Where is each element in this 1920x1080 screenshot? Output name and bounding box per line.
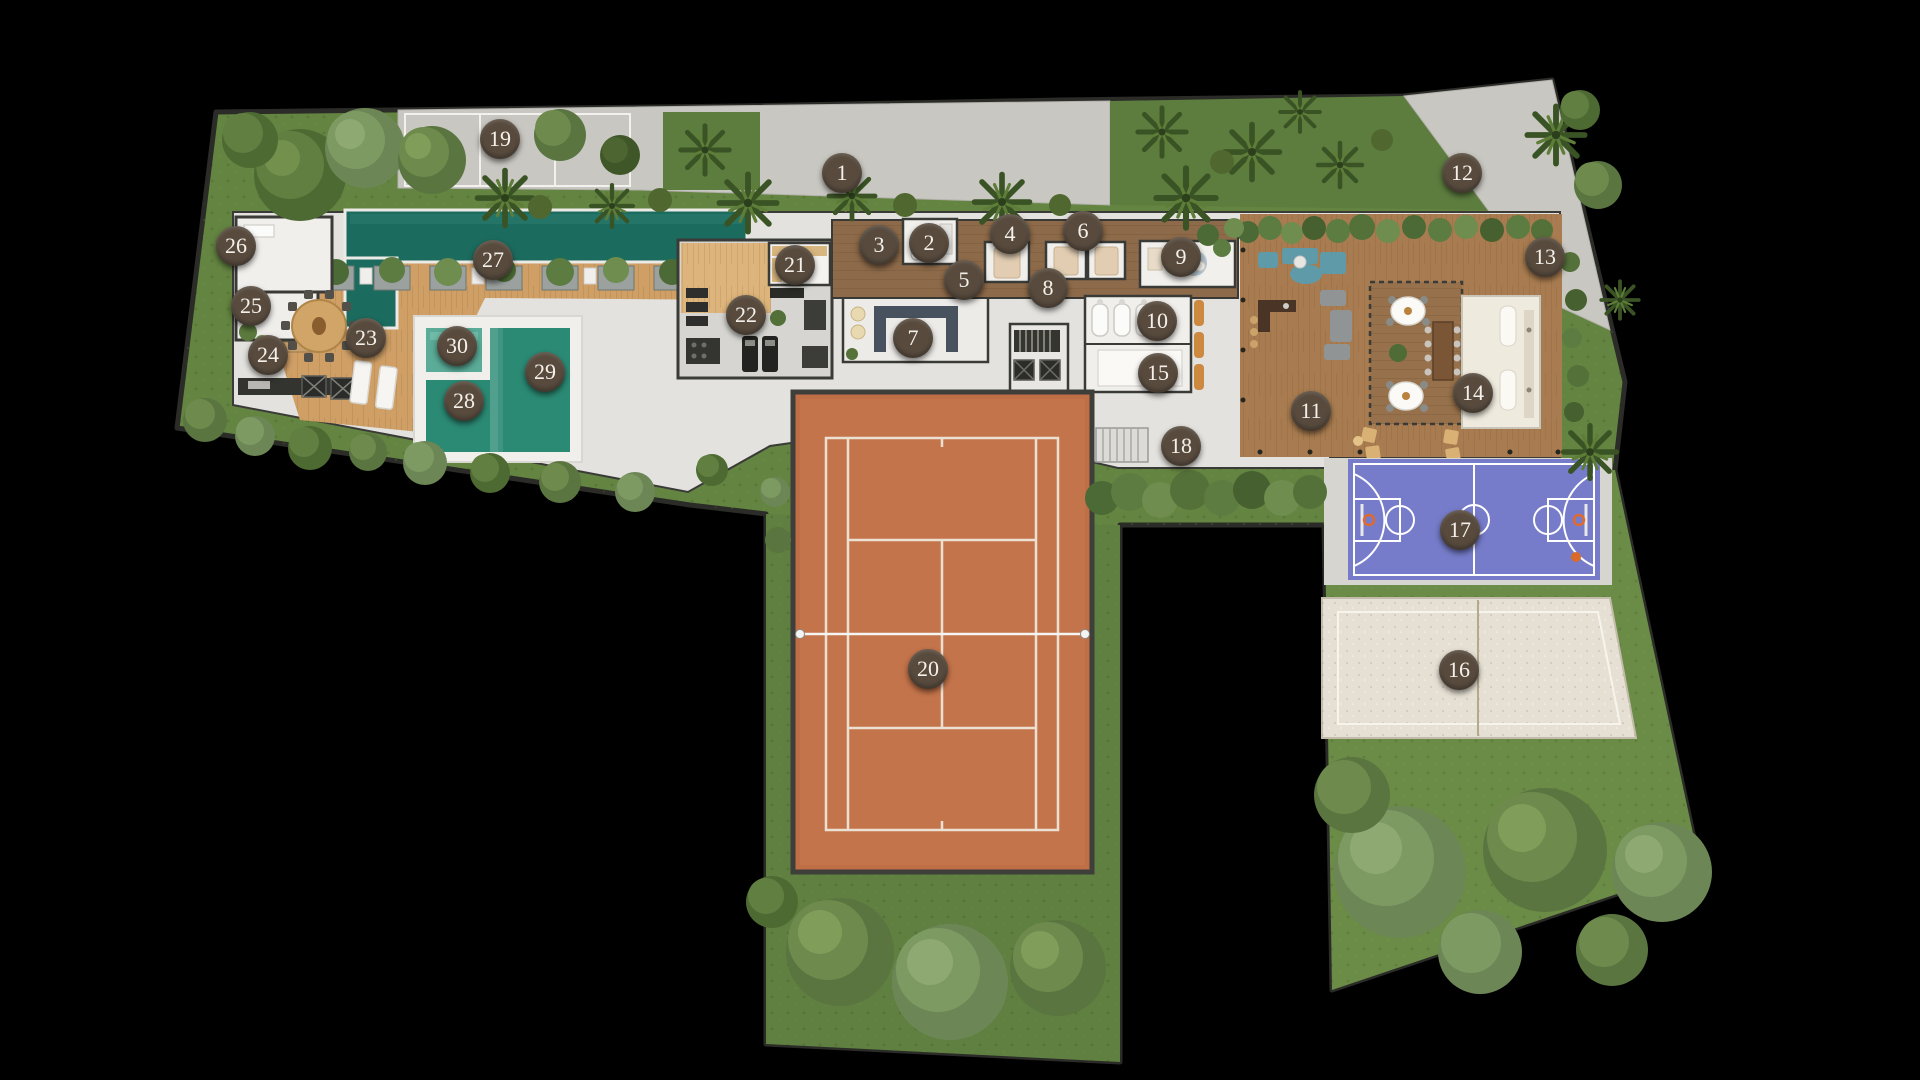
site-plan-stage: ♿ <box>0 0 1920 1080</box>
marker-1[interactable]: 1 <box>822 153 862 193</box>
marker-29[interactable]: 29 <box>525 352 565 392</box>
marker-8[interactable]: 8 <box>1028 268 1068 308</box>
marker-12[interactable]: 12 <box>1442 153 1482 193</box>
marker-18[interactable]: 18 <box>1161 426 1201 466</box>
marker-21[interactable]: 21 <box>775 245 815 285</box>
marker-20[interactable]: 20 <box>908 649 948 689</box>
marker-17[interactable]: 17 <box>1440 510 1480 550</box>
marker-23[interactable]: 23 <box>346 318 386 358</box>
marker-2[interactable]: 2 <box>909 223 949 263</box>
marker-27[interactable]: 27 <box>473 240 513 280</box>
marker-6[interactable]: 6 <box>1063 211 1103 251</box>
marker-25[interactable]: 25 <box>231 286 271 326</box>
marker-15[interactable]: 15 <box>1138 353 1178 393</box>
marker-19[interactable]: 19 <box>480 119 520 159</box>
marker-10[interactable]: 10 <box>1137 301 1177 341</box>
marker-24[interactable]: 24 <box>248 335 288 375</box>
marker-9[interactable]: 9 <box>1161 237 1201 277</box>
marker-4[interactable]: 4 <box>990 214 1030 254</box>
marker-16[interactable]: 16 <box>1439 650 1479 690</box>
marker-7[interactable]: 7 <box>893 318 933 358</box>
marker-28[interactable]: 28 <box>444 381 484 421</box>
markers-layer: 1234567891011121314151617181920212223242… <box>0 0 1920 1080</box>
marker-22[interactable]: 22 <box>726 295 766 335</box>
marker-11[interactable]: 11 <box>1291 391 1331 431</box>
marker-26[interactable]: 26 <box>216 226 256 266</box>
marker-14[interactable]: 14 <box>1453 373 1493 413</box>
marker-3[interactable]: 3 <box>859 225 899 265</box>
marker-5[interactable]: 5 <box>944 260 984 300</box>
marker-30[interactable]: 30 <box>437 326 477 366</box>
marker-13[interactable]: 13 <box>1525 237 1565 277</box>
